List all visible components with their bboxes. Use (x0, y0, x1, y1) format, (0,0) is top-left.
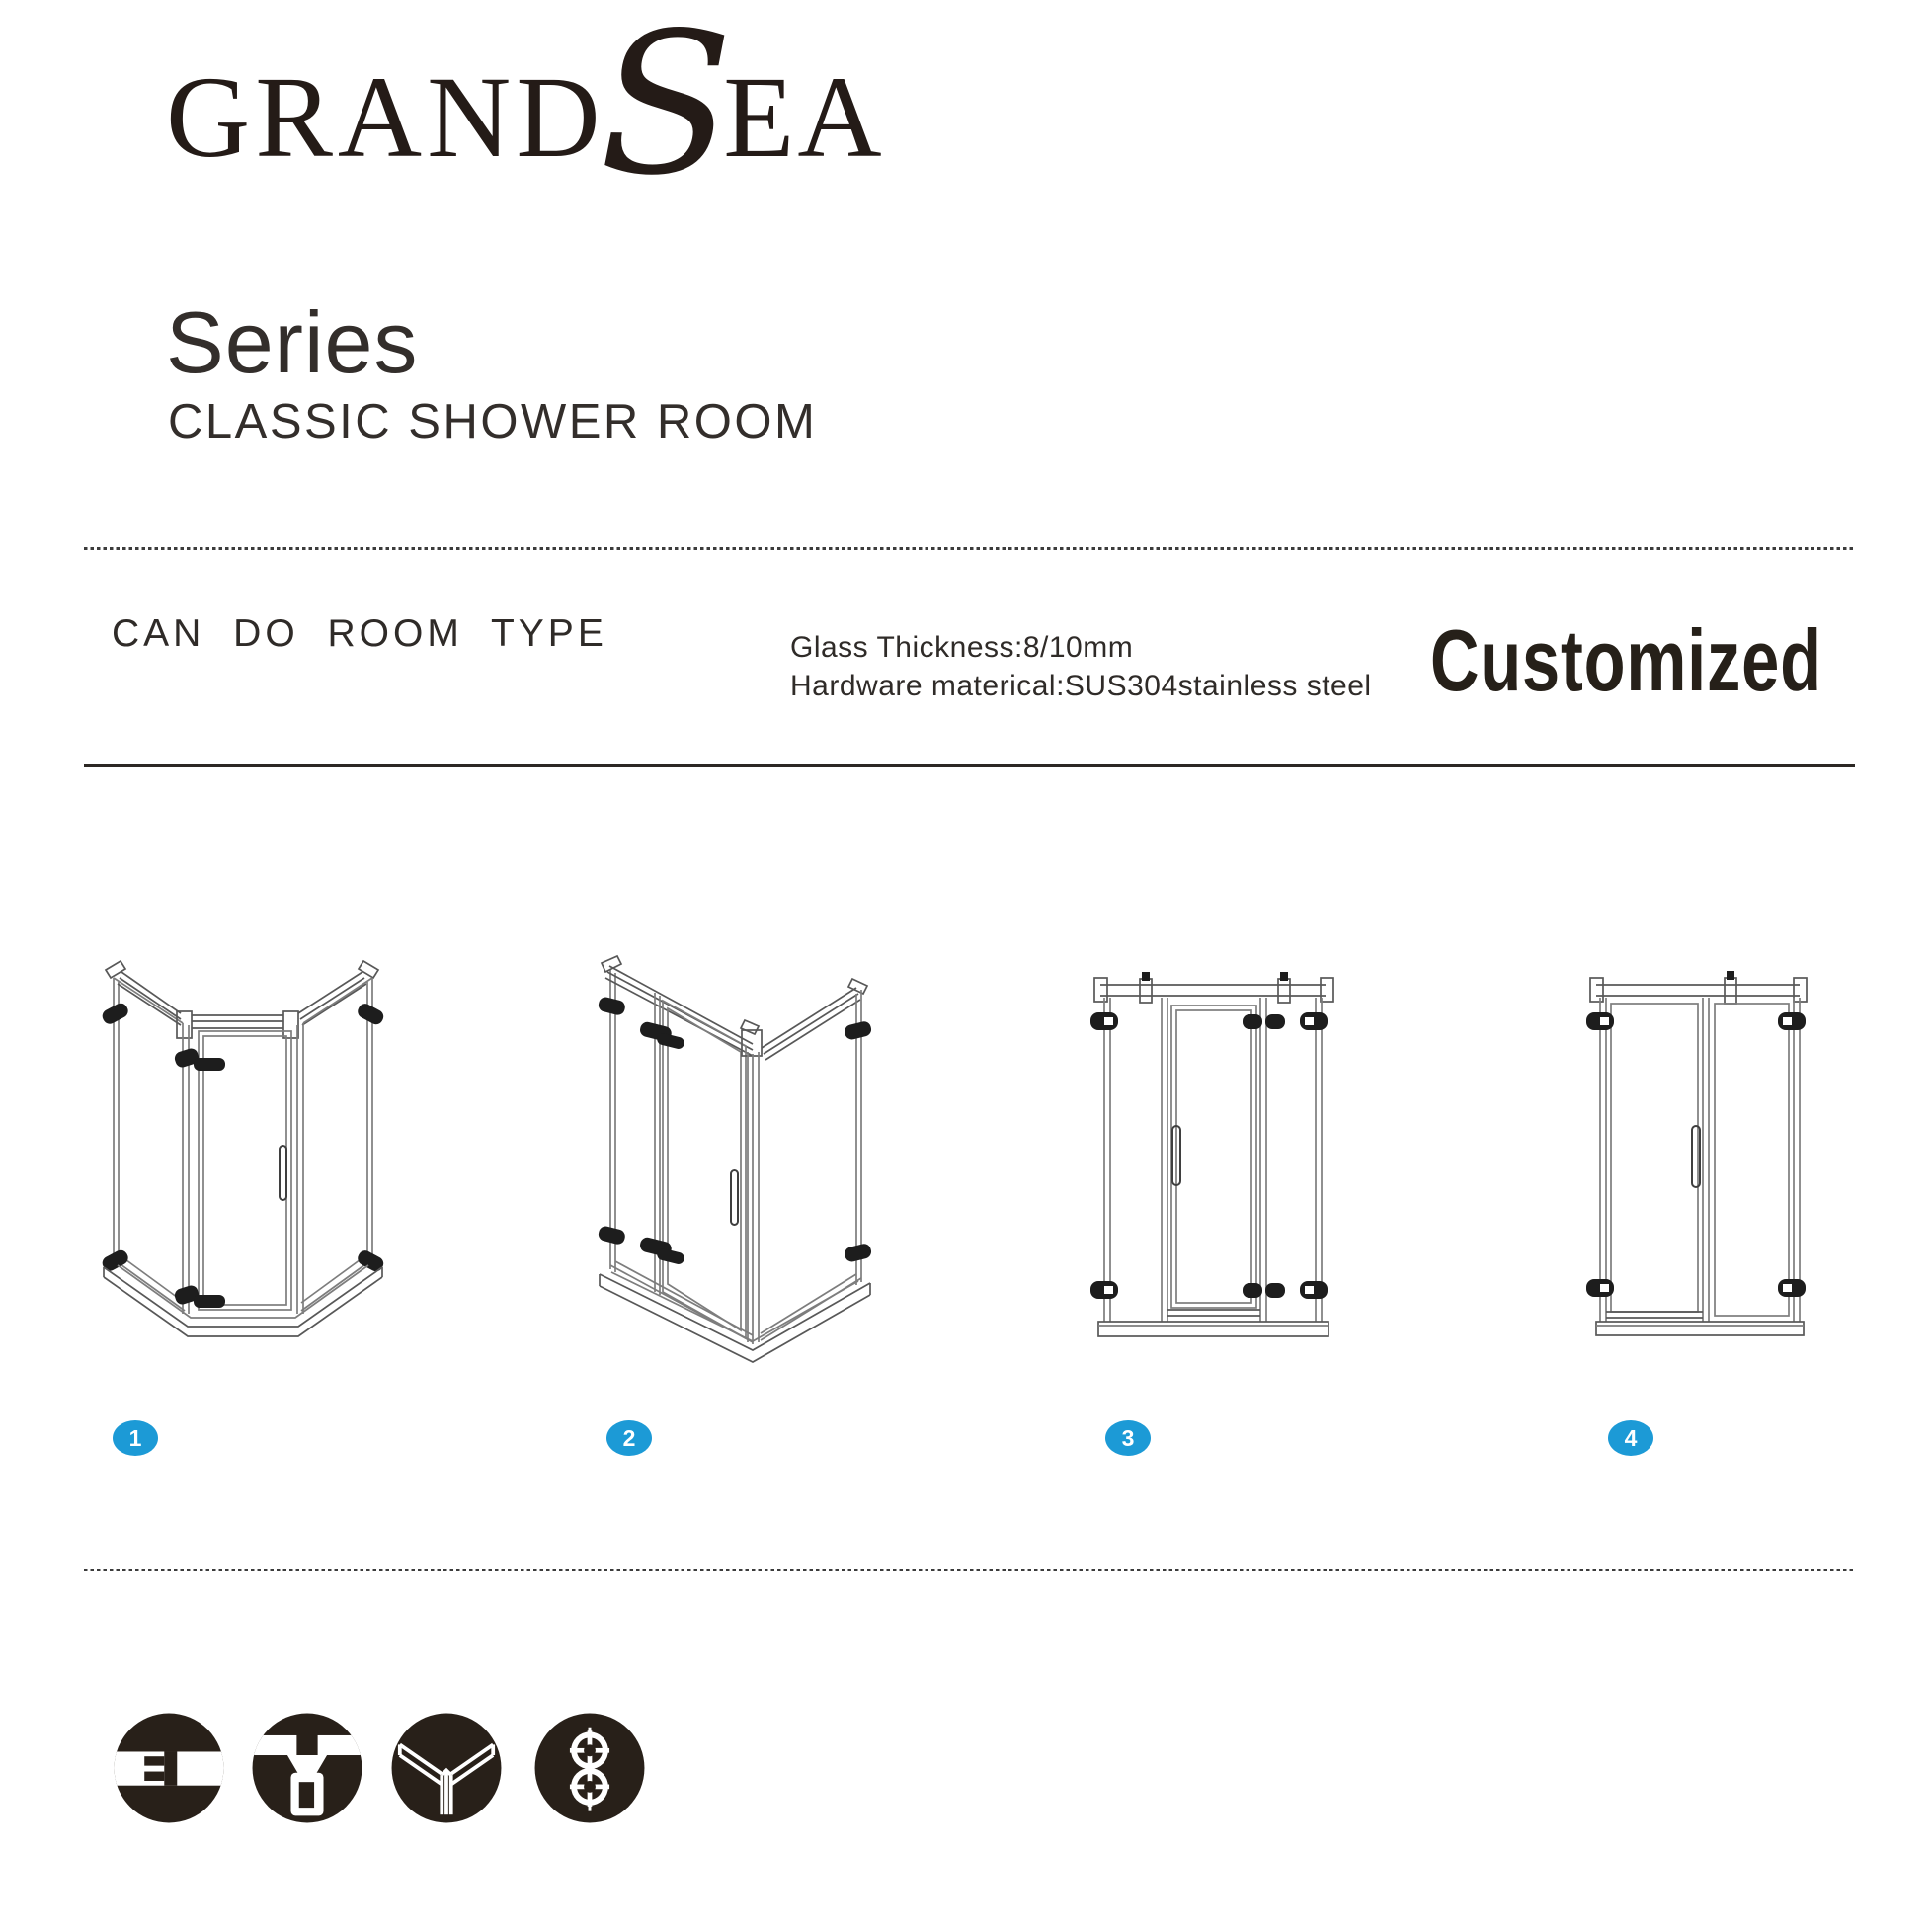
series-subtitle: CLASSIC SHOWER ROOM (168, 394, 817, 449)
dotted-divider-bottom (84, 1569, 1855, 1571)
wall-clamp (100, 1001, 130, 1026)
hinged-door (663, 1001, 746, 1338)
logo-text-grand: GRAND (166, 52, 605, 182)
shower-tray (1596, 1322, 1804, 1335)
brand-logo: GRANDSEA (166, 59, 885, 176)
door-hinge (1243, 1014, 1285, 1029)
spec-text: Glass Thickness:8/10mm Hardware materica… (790, 628, 1372, 705)
room-type-number-3: 3 (1105, 1420, 1151, 1456)
drawing-inline-door-two-panels (1067, 768, 1343, 1361)
top-cap (1094, 978, 1107, 1002)
shower-tray (600, 1272, 870, 1362)
room-type-number-4: 4 (1608, 1420, 1653, 1456)
bar-clamp (1725, 978, 1736, 1004)
spec-glass-thickness: Glass Thickness:8/10mm (790, 628, 1372, 667)
top-cap (602, 956, 621, 972)
folding-panel-icon (388, 1710, 505, 1826)
wall-clamp (1586, 1012, 1614, 1030)
wall-clamp (1300, 1012, 1328, 1030)
hinged-door (1606, 1004, 1703, 1318)
top-support-bar (1590, 971, 1807, 1004)
wall-clamp (1090, 1281, 1118, 1299)
room-type-number-1: 1 (113, 1420, 158, 1456)
bar-clamp (1140, 979, 1152, 1003)
solid-divider (84, 764, 1855, 767)
wall-clamp (597, 1225, 626, 1246)
catalog-page: GRANDSEA Series CLASSIC SHOWER ROOM CAN … (0, 0, 1932, 1931)
wall-clamp (356, 1002, 386, 1027)
wall-clamp (1778, 1279, 1806, 1297)
wall-clamp (100, 1247, 130, 1273)
wall-clamp (597, 996, 626, 1016)
hinged-door (1167, 1006, 1260, 1316)
wall-clamp (356, 1248, 386, 1274)
wall-clamp (1090, 1012, 1118, 1030)
fixed-panel (1715, 1004, 1789, 1316)
door-handle (731, 1170, 738, 1225)
wall-clamp (1586, 1279, 1614, 1297)
top-cap (359, 961, 378, 978)
top-cap (1590, 978, 1603, 1002)
room-type-number-2: 2 (606, 1420, 652, 1456)
shower-tray (104, 1265, 382, 1336)
bar-clamp (1278, 979, 1290, 1003)
wall-clamp (1300, 1281, 1328, 1299)
left-wall-panel (610, 969, 753, 1342)
door-handle (280, 1146, 286, 1200)
glass-clamp-icon (249, 1710, 365, 1826)
roller-wheels-icon (531, 1710, 648, 1826)
wall-clamp (1778, 1012, 1806, 1030)
top-support-bar (1094, 972, 1333, 1003)
glass-connector-icon (111, 1710, 227, 1826)
drawing-neo-angle-enclosure (94, 768, 390, 1361)
drawing-corner-enclosure (578, 765, 874, 1398)
top-cap (106, 961, 125, 978)
spec-hardware-material: Hardware materical:SUS304stainless steel (790, 667, 1372, 705)
shower-tray (1098, 1322, 1328, 1336)
logo-text-ea: EA (723, 52, 884, 182)
series-title: Series (166, 292, 418, 393)
customized-label: Customized (1430, 610, 1822, 711)
drawing-inline-door-one-panel (1553, 768, 1819, 1361)
wall-clamp (844, 1020, 873, 1041)
door-hinge (1243, 1283, 1285, 1298)
wall-clamp (844, 1243, 873, 1263)
room-type-label: CAN DO ROOM TYPE (112, 612, 607, 656)
top-cap (1321, 978, 1333, 1002)
dotted-divider-top (84, 547, 1855, 550)
hinged-door (199, 1031, 291, 1310)
